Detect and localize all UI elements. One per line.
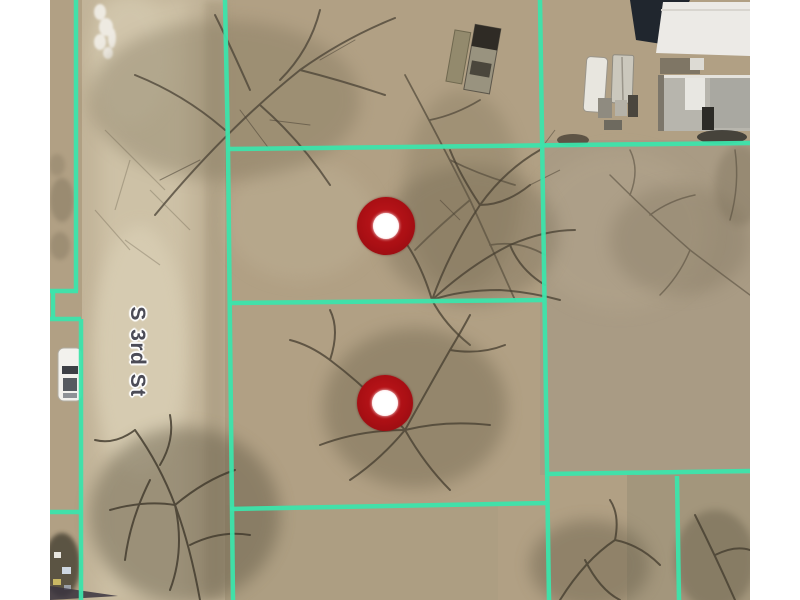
street-name-label: S 3rd St	[125, 306, 149, 397]
map-marker[interactable]	[357, 375, 413, 431]
map-marker-core	[373, 213, 399, 239]
white-border-left	[0, 0, 50, 600]
aerial-parcel-map: S 3rd St	[0, 0, 800, 600]
marker-layer	[0, 0, 800, 600]
map-marker-core	[372, 390, 398, 416]
white-border-right	[750, 0, 800, 600]
map-marker[interactable]	[357, 197, 415, 255]
